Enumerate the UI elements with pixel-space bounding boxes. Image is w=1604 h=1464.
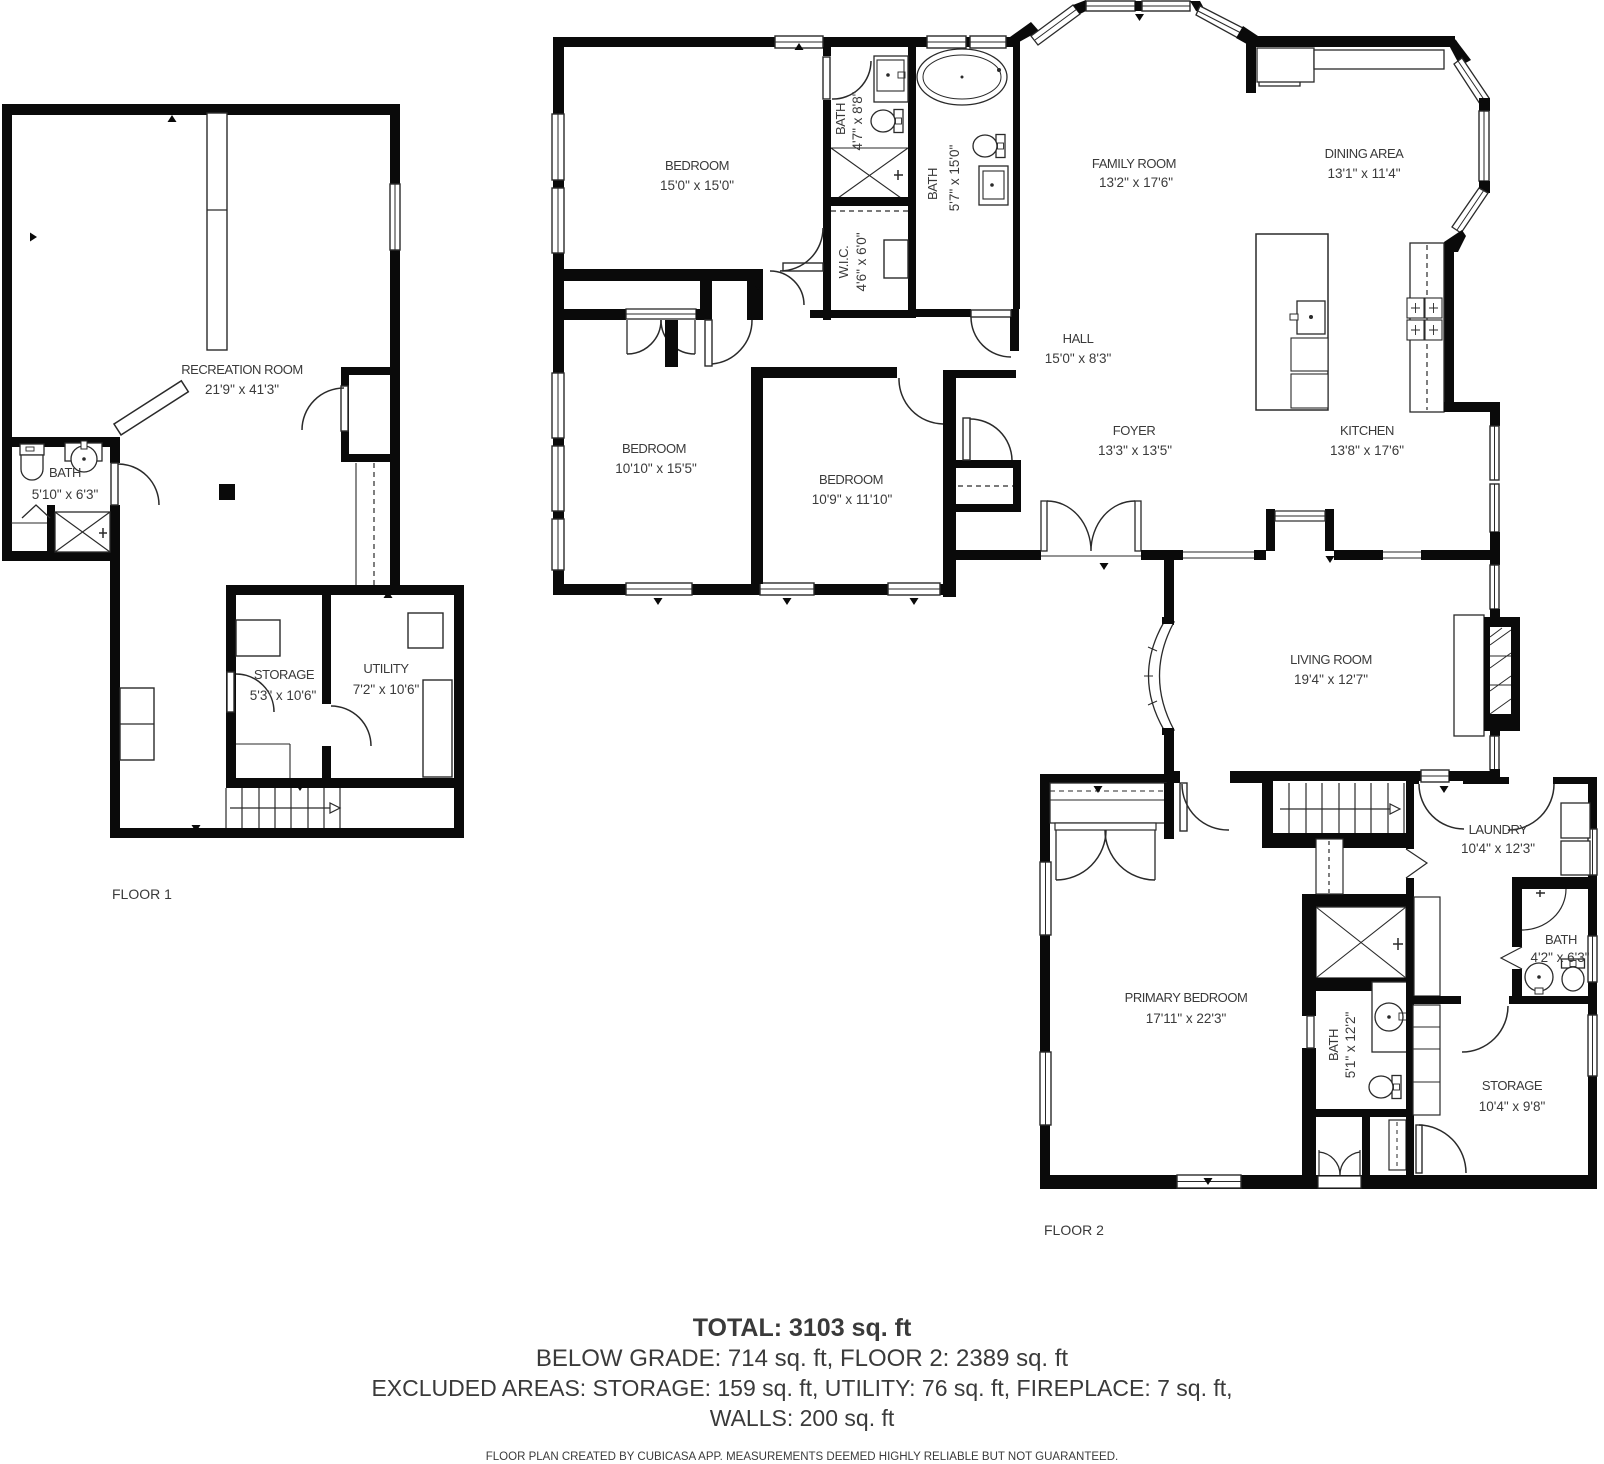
svg-text:BEDROOM: BEDROOM (622, 441, 686, 456)
svg-text:19'4" x 12'7": 19'4" x 12'7" (1294, 672, 1368, 687)
svg-text:WALLS: 200 sq. ft: WALLS: 200 sq. ft (710, 1405, 895, 1431)
svg-text:4'2" x 6'3": 4'2" x 6'3" (1530, 950, 1589, 965)
svg-text:FLOOR PLAN CREATED BY CUBICASA: FLOOR PLAN CREATED BY CUBICASA APP. MEAS… (486, 1451, 1118, 1463)
svg-text:STORAGE: STORAGE (1482, 1078, 1543, 1093)
svg-text:15'0" x 15'0": 15'0" x 15'0" (660, 178, 734, 193)
svg-text:EXCLUDED AREAS: STORAGE: 159 s: EXCLUDED AREAS: STORAGE: 159 sq. ft, UTI… (371, 1375, 1232, 1401)
svg-text:15'0" x 8'3": 15'0" x 8'3" (1045, 351, 1112, 366)
svg-text:10'9" x 11'10": 10'9" x 11'10" (812, 492, 893, 507)
svg-text:4'7" x 8'8": 4'7" x 8'8" (850, 91, 865, 150)
svg-text:FAMILY ROOM: FAMILY ROOM (1092, 156, 1176, 171)
svg-text:BATH: BATH (49, 465, 81, 480)
svg-text:FLOOR 2: FLOOR 2 (1044, 1222, 1104, 1238)
svg-text:STORAGE: STORAGE (254, 667, 315, 682)
svg-text:BATH: BATH (1326, 1029, 1341, 1061)
svg-text:HALL: HALL (1063, 331, 1094, 346)
svg-text:BEDROOM: BEDROOM (665, 158, 729, 173)
svg-text:FLOOR 1: FLOOR 1 (112, 886, 172, 902)
svg-text:5'3" x 10'6": 5'3" x 10'6" (250, 688, 317, 703)
svg-text:4'6" x 6'0": 4'6" x 6'0" (854, 232, 869, 291)
svg-text:BATH: BATH (925, 168, 940, 200)
svg-text:PRIMARY BEDROOM: PRIMARY BEDROOM (1125, 990, 1248, 1005)
svg-text:10'4" x 12'3": 10'4" x 12'3" (1461, 841, 1535, 856)
svg-text:13'1" x 11'4": 13'1" x 11'4" (1327, 166, 1400, 181)
svg-text:BATH: BATH (1545, 932, 1577, 947)
svg-text:7'2" x 10'6": 7'2" x 10'6" (353, 682, 420, 697)
svg-text:13'8" x 17'6": 13'8" x 17'6" (1330, 443, 1404, 458)
svg-text:BEDROOM: BEDROOM (819, 472, 883, 487)
svg-text:5'7" x 15'0": 5'7" x 15'0" (947, 145, 962, 212)
svg-text:5'1" x 12'2": 5'1" x 12'2" (1343, 1012, 1358, 1079)
svg-text:W.I.C.: W.I.C. (836, 246, 851, 279)
svg-text:13'2" x 17'6": 13'2" x 17'6" (1099, 175, 1173, 190)
svg-text:13'3" x 13'5": 13'3" x 13'5" (1098, 443, 1172, 458)
svg-text:LIVING ROOM: LIVING ROOM (1290, 652, 1372, 667)
svg-text:DINING AREA: DINING AREA (1325, 146, 1405, 161)
svg-text:RECREATION ROOM: RECREATION ROOM (181, 362, 303, 377)
svg-text:LAUNDRY: LAUNDRY (1469, 822, 1529, 837)
svg-text:BATH: BATH (833, 103, 848, 135)
svg-text:KITCHEN: KITCHEN (1340, 423, 1394, 438)
svg-text:21'9" x 41'3": 21'9" x 41'3" (205, 382, 279, 397)
svg-text:BELOW GRADE: 714 sq. ft, FLOOR: BELOW GRADE: 714 sq. ft, FLOOR 2: 2389 s… (536, 1345, 1069, 1372)
svg-text:17'11" x 22'3": 17'11" x 22'3" (1146, 1011, 1227, 1026)
svg-text:UTILITY: UTILITY (363, 661, 409, 676)
svg-text:TOTAL: 3103 sq. ft: TOTAL: 3103 sq. ft (693, 1314, 912, 1342)
svg-text:10'4" x 9'8": 10'4" x 9'8" (1479, 1099, 1546, 1114)
svg-text:10'10" x 15'5": 10'10" x 15'5" (615, 461, 697, 476)
svg-text:5'10" x 6'3": 5'10" x 6'3" (32, 487, 99, 502)
svg-text:FOYER: FOYER (1113, 423, 1156, 438)
